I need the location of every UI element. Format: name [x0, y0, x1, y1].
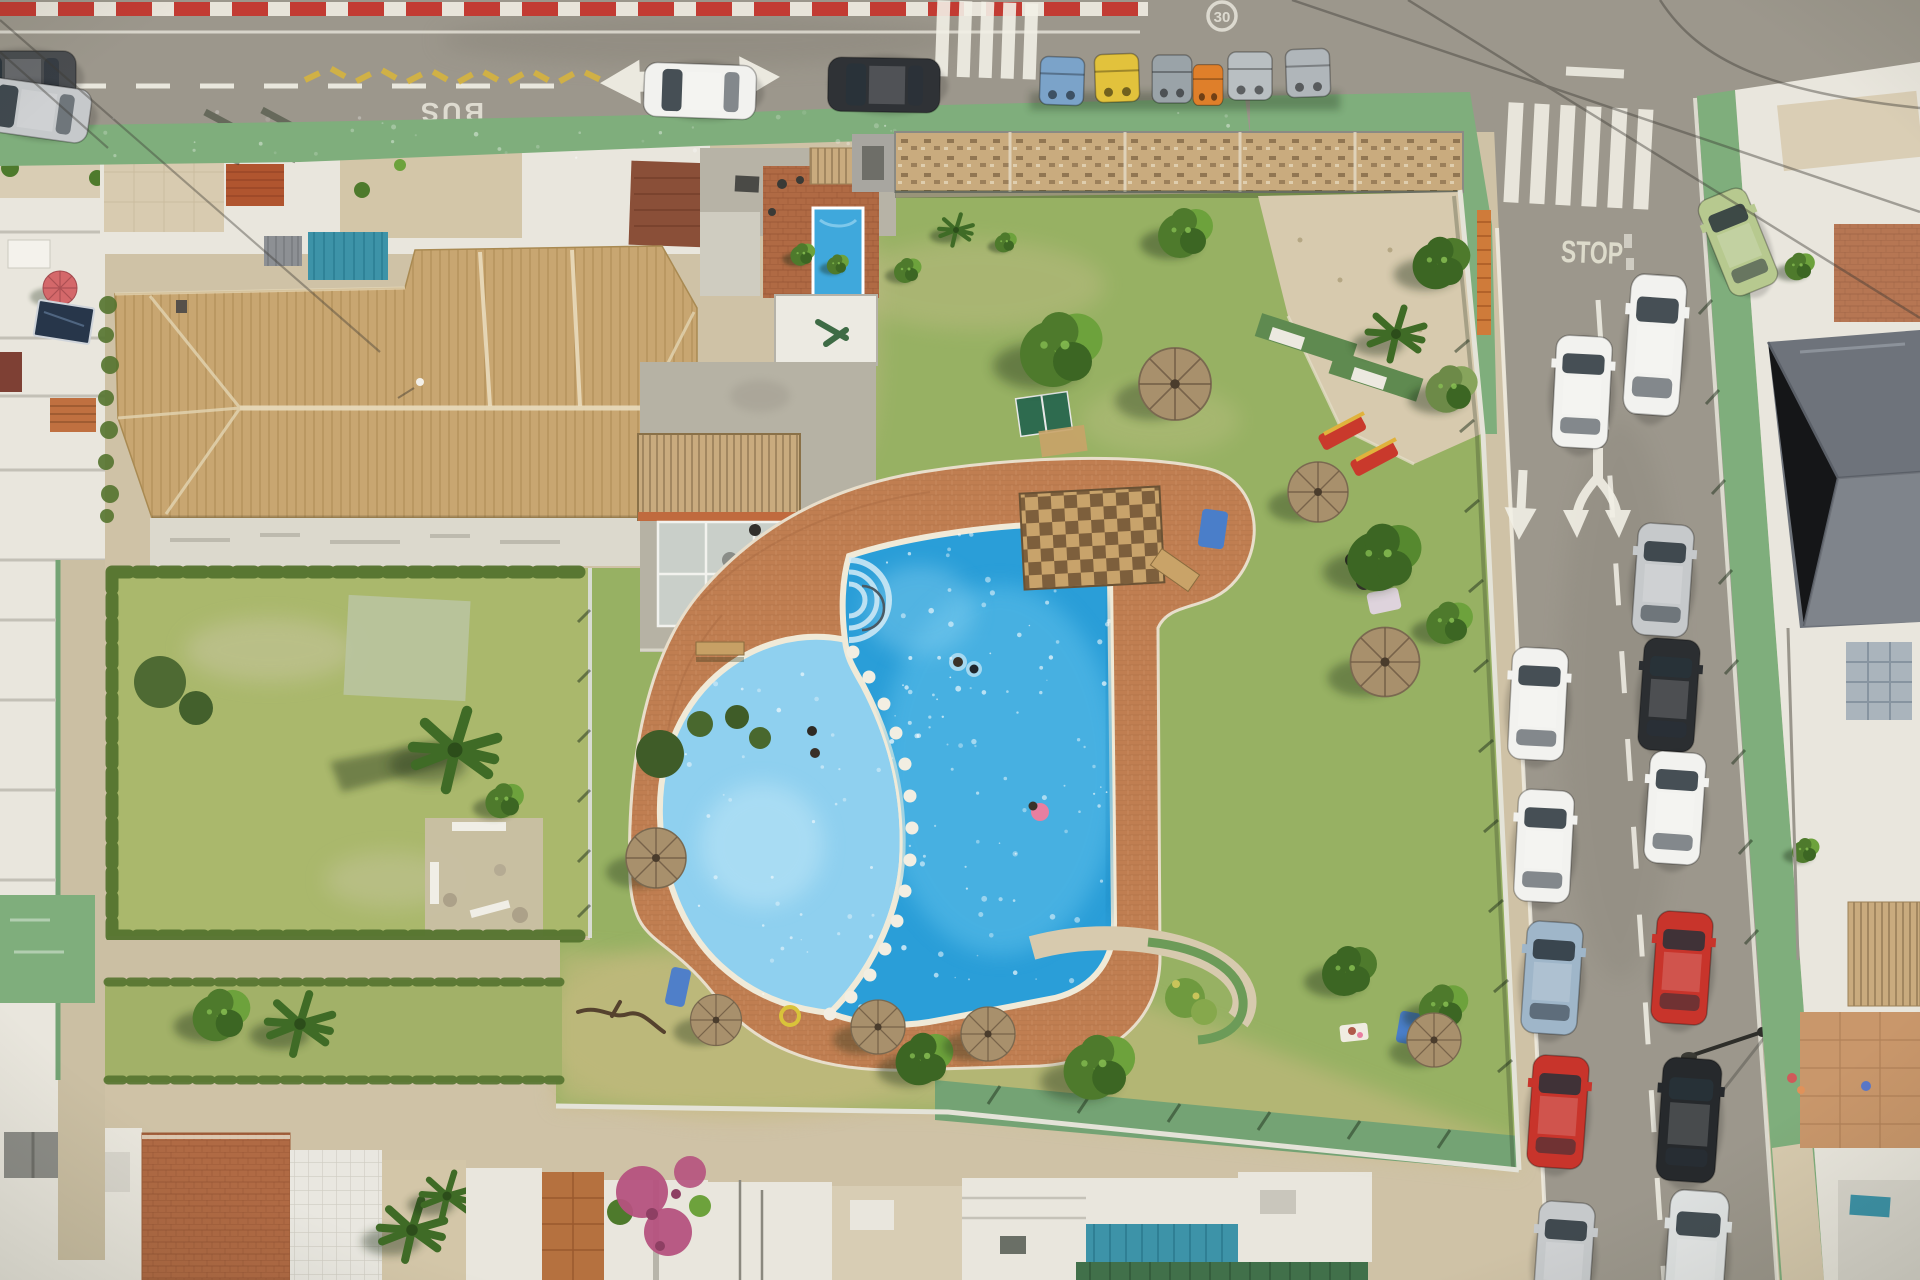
vignette: [0, 0, 1920, 1280]
aerial-scene: BUS 30 STOP: [0, 0, 1920, 1280]
aerial-photo: BUS 30 STOP: [0, 0, 1920, 1280]
